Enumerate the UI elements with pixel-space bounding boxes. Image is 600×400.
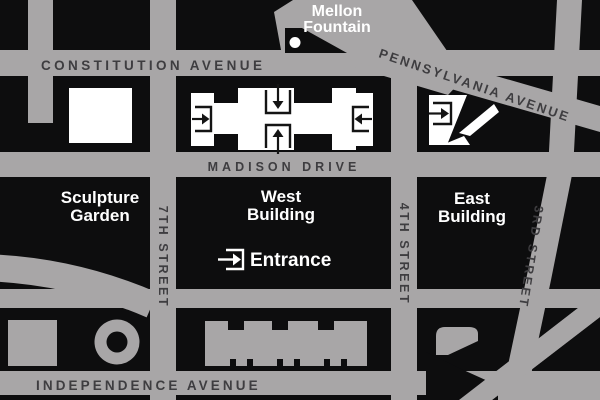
label-west-building-line1: West bbox=[261, 187, 302, 206]
label-sculpture-garden-line1: Sculpture bbox=[61, 188, 139, 207]
label-entrance: Entrance bbox=[250, 250, 331, 271]
label-7th-street: 7TH STREET bbox=[156, 206, 170, 308]
label-sculpture-garden-line2: Garden bbox=[70, 206, 130, 225]
label-east-building-line2: Building bbox=[438, 207, 506, 226]
bottom-right-street-merge bbox=[498, 393, 600, 400]
sculpture-garden-pavilion bbox=[69, 88, 132, 143]
label-constitution-avenue: CONSTITUTION AVENUE bbox=[41, 58, 265, 73]
label-madison-drive: MADISON DRIVE bbox=[208, 160, 361, 174]
label-mellon-line2: Fountain bbox=[303, 19, 371, 36]
round-building-courtyard bbox=[107, 332, 128, 353]
label-independence-avenue: INDEPENDENCE AVENUE bbox=[36, 378, 261, 393]
mellon-fountain-dot bbox=[290, 37, 301, 48]
label-east-building-line1: East bbox=[454, 189, 490, 208]
label-4th-street: 4TH STREET bbox=[397, 203, 411, 305]
street-map: CONSTITUTION AVENUE MADISON DRIVE PENNSY… bbox=[0, 0, 600, 400]
label-west-building-line2: Building bbox=[247, 205, 315, 224]
map-canvas: CONSTITUTION AVENUE MADISON DRIVE PENNSY… bbox=[0, 0, 600, 400]
gray-building-square bbox=[8, 320, 57, 366]
label-mellon-line1: Mellon bbox=[312, 3, 363, 20]
